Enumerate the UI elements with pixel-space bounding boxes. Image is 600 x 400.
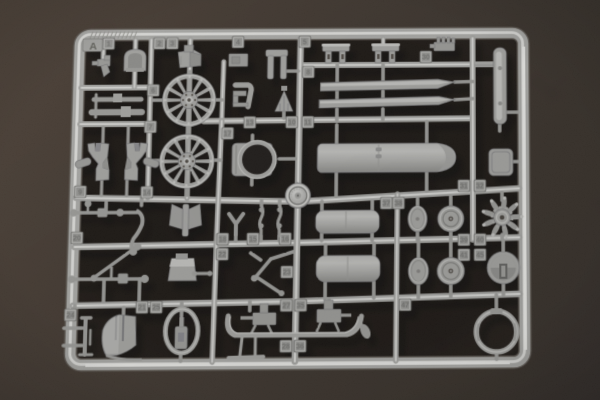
svg-text:24: 24 (66, 312, 74, 319)
svg-text:13: 13 (246, 120, 254, 127)
svg-text:39: 39 (460, 237, 468, 244)
svg-text:32: 32 (476, 183, 484, 190)
svg-text:38: 38 (401, 208, 409, 215)
svg-text:37: 37 (382, 200, 390, 207)
svg-text:27: 27 (282, 303, 290, 310)
svg-text:1: 1 (107, 41, 111, 48)
svg-text:11: 11 (304, 120, 312, 127)
svg-text:22: 22 (224, 260, 232, 267)
svg-text:7: 7 (154, 132, 158, 139)
svg-text:25: 25 (152, 305, 160, 312)
svg-text:22: 22 (218, 252, 226, 259)
svg-text:11: 11 (310, 127, 318, 134)
svg-text:6: 6 (151, 88, 155, 95)
svg-text:2: 2 (157, 41, 161, 48)
svg-text:1: 1 (112, 49, 116, 56)
svg-text:36: 36 (296, 343, 304, 350)
svg-text:41: 41 (466, 260, 474, 267)
svg-text:14: 14 (143, 190, 151, 197)
svg-text:18: 18 (219, 236, 227, 243)
svg-text:35: 35 (303, 311, 311, 318)
svg-text:15: 15 (249, 236, 257, 243)
svg-text:47: 47 (407, 310, 415, 317)
svg-text:5: 5 (303, 39, 307, 46)
svg-text:20: 20 (73, 235, 81, 242)
svg-text:10: 10 (288, 120, 296, 127)
svg-text:21: 21 (144, 313, 152, 320)
svg-text:40: 40 (476, 237, 484, 244)
svg-text:35: 35 (297, 303, 305, 310)
svg-text:16: 16 (281, 236, 289, 243)
svg-text:A: A (89, 42, 97, 53)
svg-text:25: 25 (158, 313, 166, 320)
svg-text:17: 17 (224, 131, 232, 138)
svg-text:45: 45 (476, 252, 484, 259)
svg-text:28: 28 (282, 344, 290, 351)
svg-text:9: 9 (78, 189, 82, 196)
svg-text:3: 3 (170, 41, 174, 48)
svg-text:47: 47 (401, 302, 409, 309)
svg-text:21: 21 (138, 305, 146, 312)
svg-text:5: 5 (309, 47, 313, 54)
svg-text:41: 41 (460, 252, 468, 259)
svg-text:8: 8 (306, 69, 310, 76)
svg-text:23: 23 (283, 269, 291, 276)
svg-text:38: 38 (395, 200, 403, 207)
svg-text:30: 30 (422, 54, 430, 61)
svg-text:7: 7 (148, 124, 152, 131)
svg-text:31: 31 (460, 183, 468, 190)
svg-text:2: 2 (163, 49, 167, 56)
svg-text:4: 4 (236, 40, 240, 47)
svg-text:8: 8 (312, 77, 316, 84)
svg-text:4: 4 (242, 47, 246, 54)
